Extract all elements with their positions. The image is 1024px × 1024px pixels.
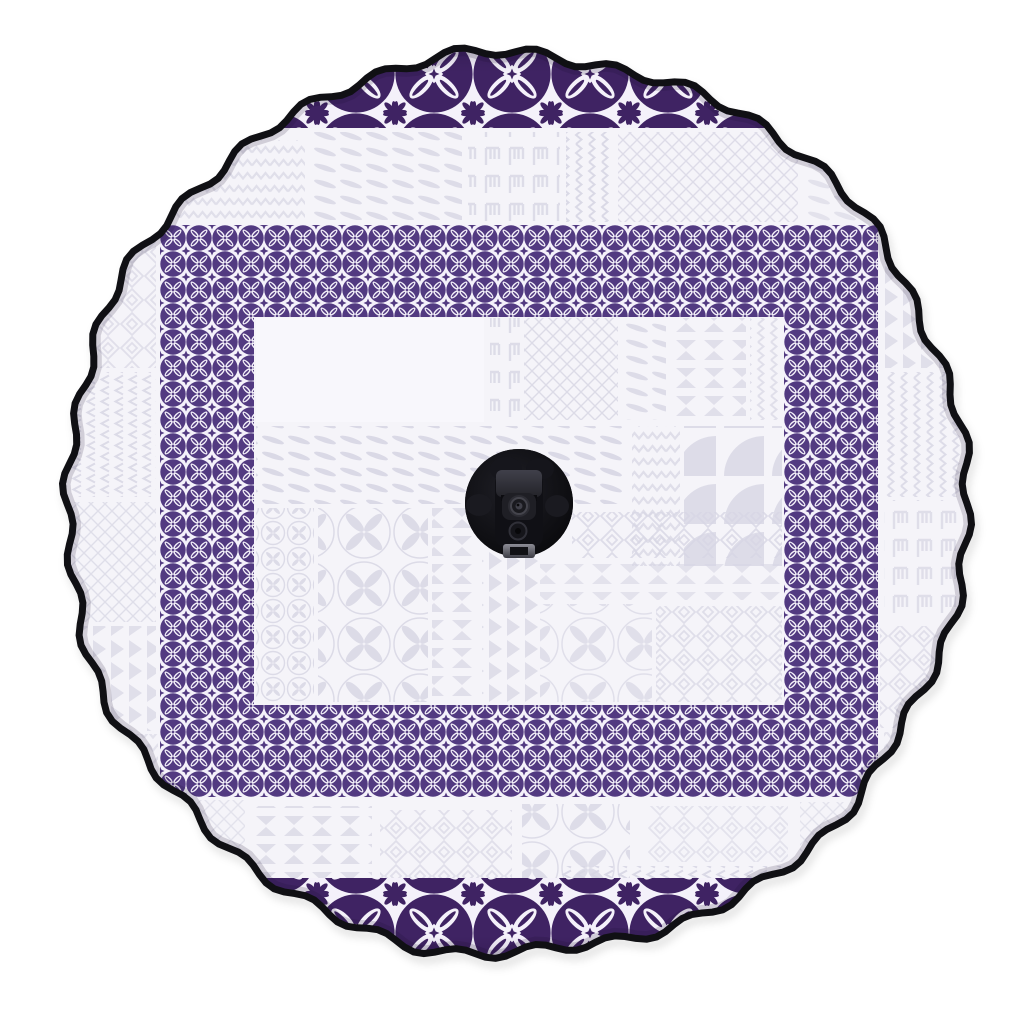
lens-pupil bbox=[517, 504, 520, 507]
product-photo-canvas bbox=[0, 0, 1024, 1024]
mount-hole-center bbox=[515, 528, 521, 534]
mount-clamp-slot bbox=[510, 547, 528, 555]
lens-center bbox=[516, 503, 523, 510]
wheel-hub-bump-right bbox=[545, 495, 569, 517]
wheel-hub-bump-left bbox=[466, 494, 492, 516]
tire-cover-face bbox=[0, 0, 1024, 1024]
camera-head bbox=[496, 470, 542, 497]
tire-cover-illustration bbox=[0, 0, 1024, 1024]
